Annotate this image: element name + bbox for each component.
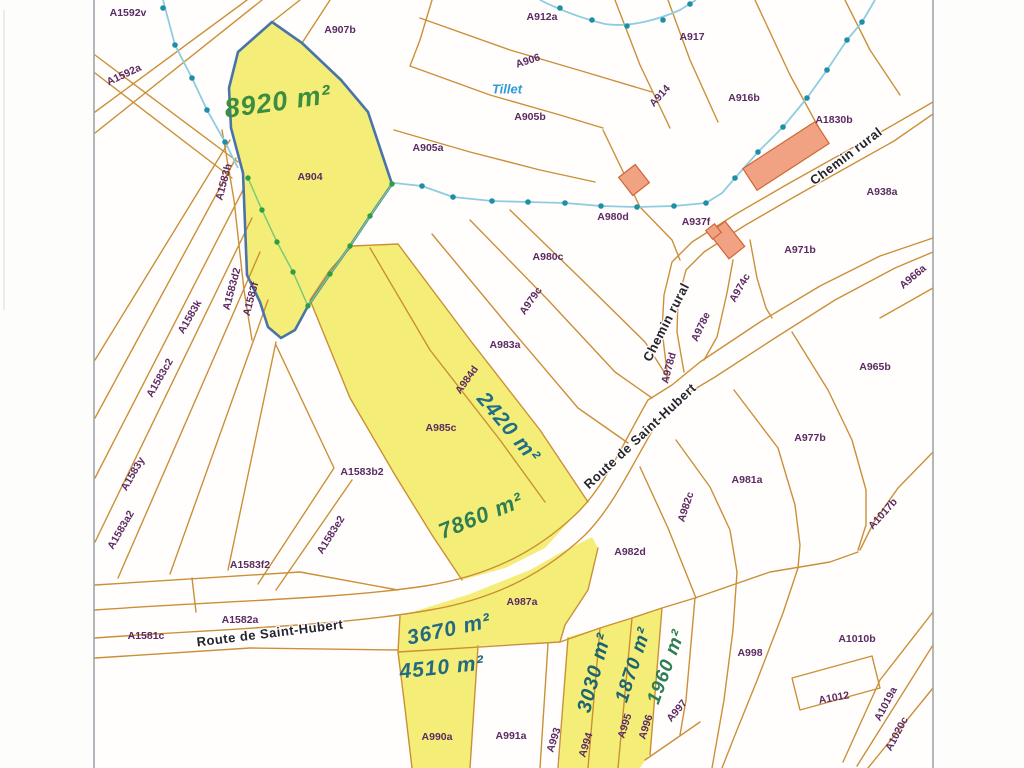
- cadastral-map: [0, 0, 1024, 768]
- cadastral-map-page: A1592vA1592aA907bA912aA917A906A914A916bA…: [0, 0, 1024, 768]
- map-sheet: [95, 0, 933, 768]
